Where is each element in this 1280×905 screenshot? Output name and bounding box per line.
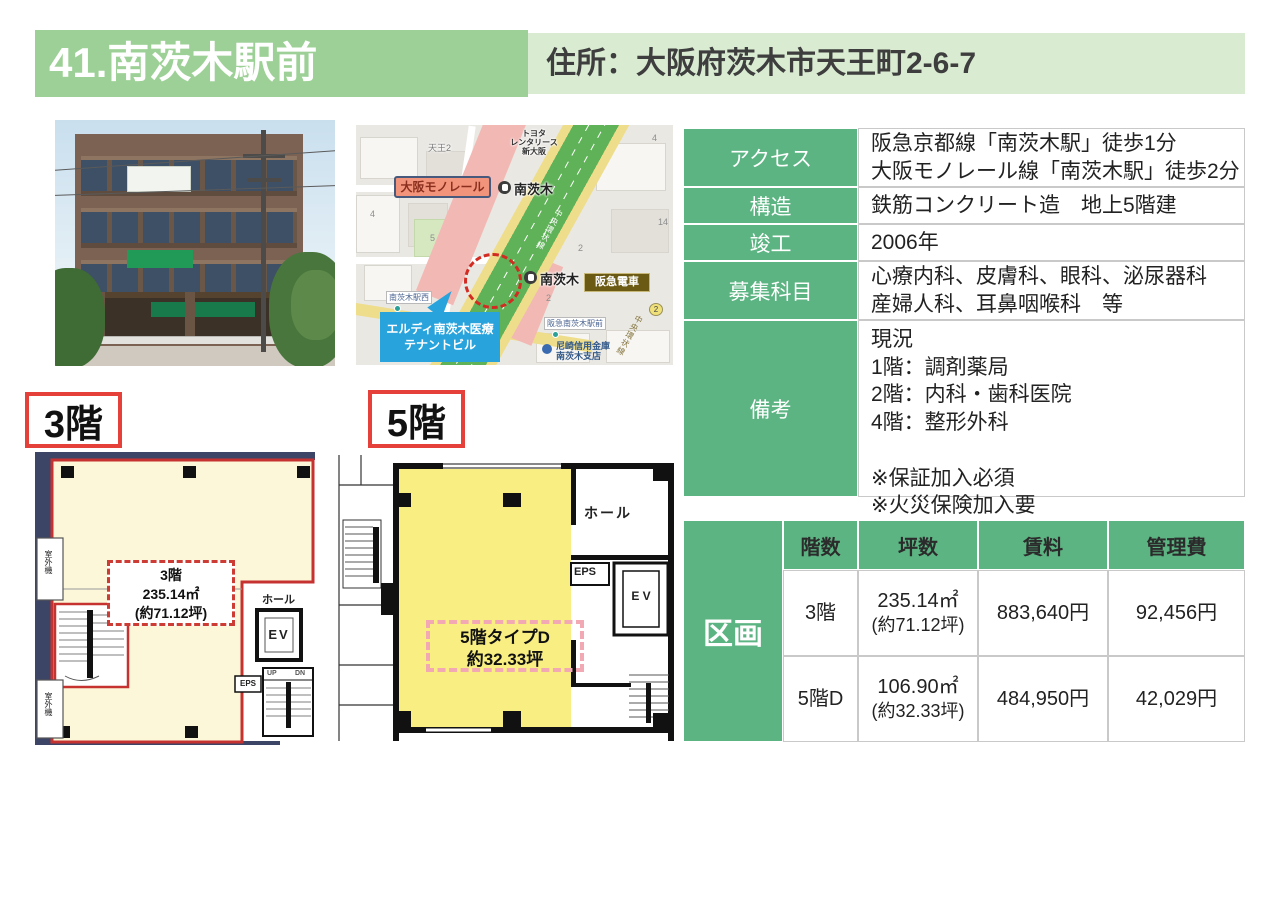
floor-badge-3f: 3階 [25,392,122,448]
property-callout: エルディ南茨木医療 テナントビル [380,312,500,362]
block-number: 4 [370,209,375,219]
map-building [356,195,400,253]
utility-pole [261,130,266,352]
price-header-rent: 賃料 [978,520,1108,570]
building-sign-green [127,250,193,268]
hankyu-badge: 阪急電車 [584,273,650,292]
bus-stop-icon [394,305,401,312]
storefront-sign [151,302,255,317]
info-value-built: 2006年 [858,224,1245,261]
info-label-structure: 構造 [683,187,858,224]
plan5-ev-label: E V [623,589,659,603]
plan5-hall-label: ホール [584,503,632,523]
pole-crossarm [247,178,281,182]
price-row2-size-tsubo: (約32.33坪) [871,700,964,723]
plan3-annotation: 3階 235.14㎡ (約71.12坪) [107,560,235,626]
floorplan-5f: 5階タイプD 約32.33坪 ホール EPS E V [331,455,680,741]
floorplan-3f: 3階 235.14㎡ (約71.12坪) ホール EV EPS UP DN 室外… [35,452,315,745]
map-building [360,137,418,179]
info-value-structure: 鉄筋コンクリート造 地上5階建 [858,187,1245,224]
block-number: 14 [658,217,668,227]
plan3-ann-area: 235.14㎡ [110,585,232,604]
price-row2-size: 106.90㎡ (約32.33坪) [858,656,978,742]
block-number: 2 [578,243,583,253]
map-building [611,209,669,253]
info-value-access: 阪急京都線「南茨木駅」徒歩1分 大阪モノレール線「南茨木駅」徒歩2分 [858,128,1245,187]
price-row1-floor: 3階 [783,570,858,656]
bank-icon [542,344,552,354]
station-name-north: 南茨木 [514,179,553,198]
area-label: 天王2 [428,141,451,154]
tree [291,270,335,340]
station-name-south: 南茨木 [540,269,579,288]
block-number: 2 [546,293,551,303]
plan3-outdoor-unit-label: 室外機 [43,550,54,574]
page-title: 41.南茨木駅前 [35,30,528,97]
block-number: 4 [652,133,657,143]
price-section-label: 区画 [683,520,783,742]
location-map: 中央環状線 中央環状線 トヨタ レンタリース 新大阪 天王2 4 2 14 5 … [356,125,673,365]
plan3-up-label: UP [267,670,277,677]
info-label-built: 竣工 [683,224,858,261]
price-header-fee: 管理費 [1108,520,1245,570]
price-row1-size: 235.14㎡ (約71.12坪) [858,570,978,656]
monorail-badge: 大阪モノレール [394,176,491,198]
price-row2-fee: 42,029円 [1108,656,1245,742]
plan5-ann-tsubo: 約32.33坪 [430,649,580,671]
plan3-hall-label: ホール [262,591,295,607]
price-row2-size-sqm: 106.90㎡ [877,675,958,700]
plan5-annotation: 5階タイプD 約32.33坪 [426,620,584,672]
bus-stop-icon [552,331,559,338]
price-row1-rent: 883,640円 [978,570,1108,656]
price-row1-size-tsubo: (約71.12坪) [871,614,964,637]
building-photo: 類塾 [55,120,335,366]
info-value-remarks: 現況 1階：調剤薬局 2階：内科・歯科医院 4階：整形外科 ※保証加入必須 ※火… [858,320,1245,497]
ekimae-label: 阪急南茨木駅前 [544,317,606,330]
plan3-outdoor-unit-label: 室外機 [43,692,54,716]
bank-label: 尼崎信用金庫 南茨木支店 [556,341,610,361]
pillar [185,292,195,340]
plan3-dn-label: DN [295,670,305,677]
west-exit-label: 南茨木駅西 [386,291,432,304]
building-sign-white [127,166,191,192]
plan3-ev-label: EV [257,627,301,642]
price-header-floor: 階数 [783,520,858,570]
info-label-departments: 募集科目 [683,261,858,320]
property-highlight-circle [464,253,522,309]
price-row1-size-sqm: 235.14㎡ [877,589,958,614]
floor-badge-5f: 5階 [368,390,465,448]
plan5-eps-label: EPS [574,566,596,578]
plan3-ann-tsubo: (約71.12坪) [110,604,232,623]
price-table: 区画 階数 坪数 賃料 管理費 3階 235.14㎡ (約71.12坪) 883… [683,520,1245,742]
price-row1-fee: 92,456円 [1108,570,1245,656]
info-value-departments: 心療内科、皮膚科、眼科、泌尿器科 産婦人科、耳鼻咽喉科 等 [858,261,1245,320]
property-info-table: アクセス 阪急京都線「南茨木駅」徒歩1分 大阪モノレール線「南茨木駅」徒歩2分 … [683,128,1245,497]
address-bar: 住所：大阪府茨木市天王町2-6-7 [528,33,1245,94]
block-number: 5 [430,233,435,243]
station-icon [524,271,537,284]
info-label-access: アクセス [683,128,858,187]
price-header-size: 坪数 [858,520,978,570]
station-icon [498,181,511,194]
toyota-label: トヨタ レンタリース 新大阪 [494,129,574,156]
info-label-remarks: 備考 [683,320,858,497]
route-shield: 2 [649,303,663,316]
plan3-ann-floor: 3階 [110,566,232,585]
price-row2-rent: 484,950円 [978,656,1108,742]
plan5-ann-type: 5階タイプD [430,627,580,649]
plan3-eps-label: EPS [235,679,261,688]
price-row2-floor: 5階D [783,656,858,742]
